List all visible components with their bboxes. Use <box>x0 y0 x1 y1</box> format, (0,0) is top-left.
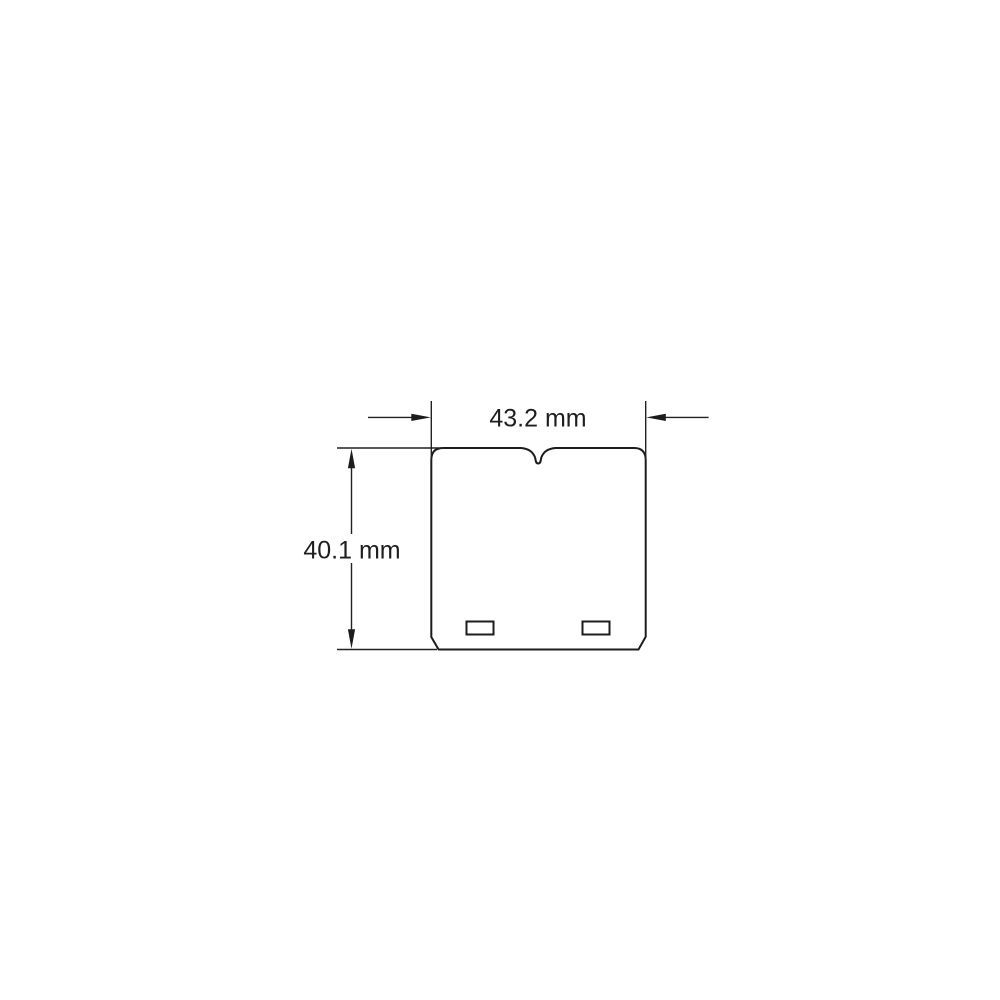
svg-text:43.2 mm: 43.2 mm <box>489 405 586 433</box>
svg-text:40.1 mm: 40.1 mm <box>303 536 400 564</box>
